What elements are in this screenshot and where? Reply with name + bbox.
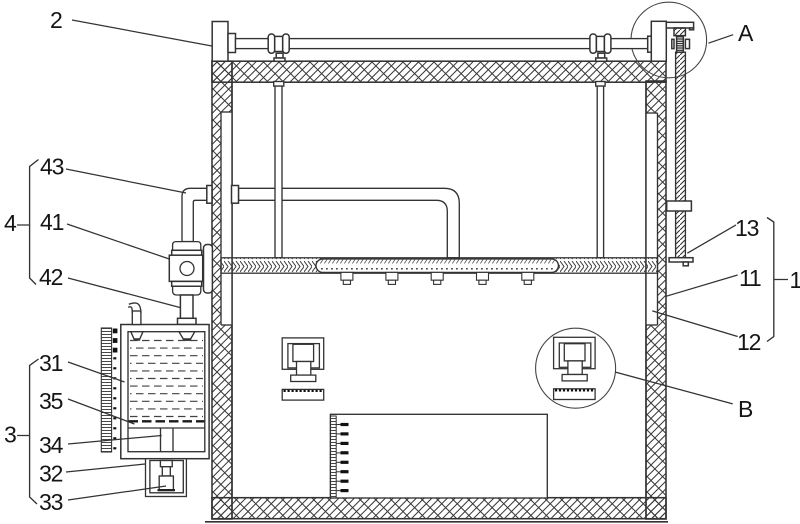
svg-text:32: 32: [39, 461, 63, 487]
svg-text:13: 13: [735, 215, 759, 241]
svg-text:11: 11: [739, 265, 761, 291]
svg-text:A: A: [738, 20, 754, 46]
svg-text:41: 41: [40, 209, 64, 235]
svg-text:33: 33: [39, 489, 63, 515]
svg-text:42: 42: [39, 264, 63, 290]
svg-text:3: 3: [4, 422, 16, 448]
svg-text:43: 43: [40, 154, 64, 180]
svg-text:1: 1: [790, 267, 800, 293]
svg-text:31: 31: [39, 350, 63, 376]
svg-text:12: 12: [737, 329, 761, 355]
svg-text:4: 4: [4, 210, 17, 236]
svg-text:34: 34: [39, 432, 64, 458]
svg-text:2: 2: [50, 7, 62, 33]
svg-text:35: 35: [39, 388, 63, 414]
svg-text:B: B: [738, 396, 753, 422]
